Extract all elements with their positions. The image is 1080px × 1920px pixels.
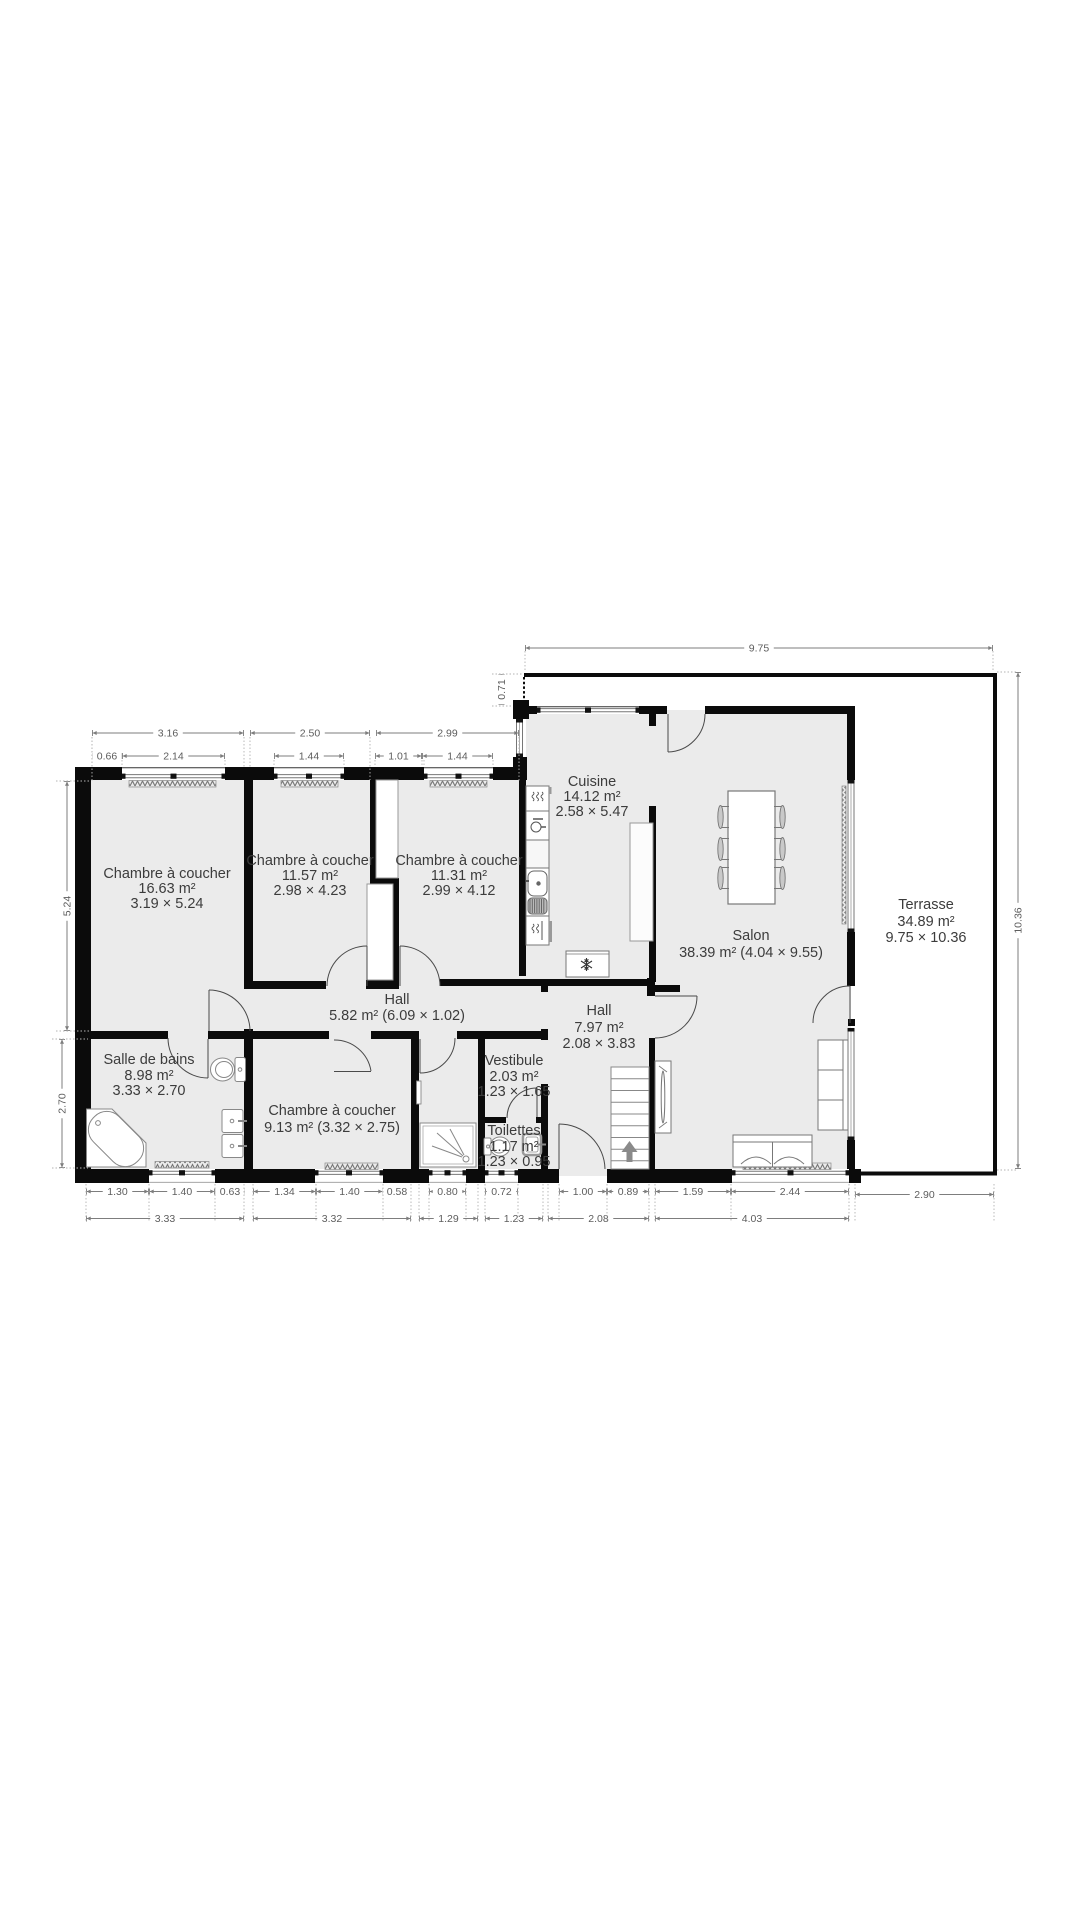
svg-text:0.80: 0.80 xyxy=(437,1186,458,1198)
svg-text:1.29: 1.29 xyxy=(438,1213,459,1225)
svg-text:11.31 m²: 11.31 m² xyxy=(431,868,487,884)
svg-text:1.59: 1.59 xyxy=(683,1186,704,1198)
svg-text:2.14: 2.14 xyxy=(163,750,184,762)
svg-text:2.08: 2.08 xyxy=(588,1213,609,1225)
svg-text:38.39 m² (4.04 × 9.55): 38.39 m² (4.04 × 9.55) xyxy=(679,945,823,961)
svg-text:1.44: 1.44 xyxy=(299,750,320,762)
svg-text:3.33 × 2.70: 3.33 × 2.70 xyxy=(113,1083,186,1099)
svg-text:1.01: 1.01 xyxy=(388,750,409,762)
svg-text:Salon: Salon xyxy=(732,928,769,944)
svg-text:2.08 × 3.83: 2.08 × 3.83 xyxy=(563,1036,636,1052)
svg-text:Terrasse: Terrasse xyxy=(898,897,954,913)
svg-text:Cuisine: Cuisine xyxy=(568,774,616,790)
svg-text:10.36: 10.36 xyxy=(1012,907,1024,933)
svg-text:2.90: 2.90 xyxy=(914,1189,935,1201)
svg-text:4.03: 4.03 xyxy=(742,1213,763,1225)
svg-text:8.98 m²: 8.98 m² xyxy=(124,1068,173,1084)
svg-text:1.40: 1.40 xyxy=(172,1186,193,1198)
svg-text:3.16: 3.16 xyxy=(158,727,179,739)
svg-text:Chambre à coucher: Chambre à coucher xyxy=(395,853,523,869)
svg-text:0.66: 0.66 xyxy=(97,750,118,762)
svg-text:1.23: 1.23 xyxy=(504,1213,525,1225)
svg-text:2.50: 2.50 xyxy=(300,727,321,739)
svg-text:2.44: 2.44 xyxy=(780,1186,801,1198)
svg-text:1.44: 1.44 xyxy=(447,750,468,762)
svg-text:Chambre à coucher: Chambre à coucher xyxy=(268,1103,396,1119)
svg-text:2.70: 2.70 xyxy=(56,1093,68,1114)
svg-text:7.97 m²: 7.97 m² xyxy=(574,1020,623,1036)
svg-text:2.99 × 4.12: 2.99 × 4.12 xyxy=(423,883,496,899)
svg-text:1.40: 1.40 xyxy=(339,1186,360,1198)
svg-text:1.23 × 1.65: 1.23 × 1.65 xyxy=(478,1084,551,1100)
svg-text:2.03 m²: 2.03 m² xyxy=(489,1069,538,1085)
svg-text:Vestibule: Vestibule xyxy=(485,1053,544,1069)
svg-text:0.89: 0.89 xyxy=(618,1186,639,1198)
svg-text:Chambre à coucher: Chambre à coucher xyxy=(246,853,374,869)
svg-text:9.75 × 10.36: 9.75 × 10.36 xyxy=(885,930,966,946)
svg-text:9.13 m² (3.32 × 2.75): 9.13 m² (3.32 × 2.75) xyxy=(264,1120,400,1136)
svg-text:0.63: 0.63 xyxy=(220,1186,241,1198)
svg-text:3.19 × 5.24: 3.19 × 5.24 xyxy=(131,896,204,912)
svg-text:5.82 m² (6.09 × 1.02): 5.82 m² (6.09 × 1.02) xyxy=(329,1008,465,1024)
svg-text:Toilettes: Toilettes xyxy=(487,1123,540,1139)
svg-text:Salle de bains: Salle de bains xyxy=(103,1052,194,1068)
svg-text:0.71: 0.71 xyxy=(496,679,508,700)
svg-text:9.75: 9.75 xyxy=(749,642,770,654)
svg-text:2.58 × 5.47: 2.58 × 5.47 xyxy=(556,804,629,820)
svg-text:Hall: Hall xyxy=(385,992,410,1008)
svg-text:0.58: 0.58 xyxy=(387,1186,408,1198)
svg-text:5.24: 5.24 xyxy=(61,896,73,917)
svg-text:14.12 m²: 14.12 m² xyxy=(563,789,620,805)
svg-text:Hall: Hall xyxy=(587,1003,612,1019)
svg-text:11.57 m²: 11.57 m² xyxy=(282,868,338,884)
svg-text:3.33: 3.33 xyxy=(155,1213,176,1225)
svg-text:1.00: 1.00 xyxy=(573,1186,594,1198)
svg-text:3.32: 3.32 xyxy=(322,1213,343,1225)
svg-text:16.63 m²: 16.63 m² xyxy=(138,881,195,897)
svg-text:1.34: 1.34 xyxy=(274,1186,295,1198)
svg-text:1.30: 1.30 xyxy=(107,1186,128,1198)
svg-text:2.99: 2.99 xyxy=(437,727,458,739)
svg-text:2.98 × 4.23: 2.98 × 4.23 xyxy=(274,883,347,899)
svg-text:1.17 m²: 1.17 m² xyxy=(489,1139,538,1155)
svg-text:Chambre à coucher: Chambre à coucher xyxy=(103,866,231,882)
svg-text:34.89 m²: 34.89 m² xyxy=(897,914,954,930)
svg-text:1.23 × 0.95: 1.23 × 0.95 xyxy=(478,1154,551,1170)
svg-text:0.72: 0.72 xyxy=(491,1186,512,1198)
